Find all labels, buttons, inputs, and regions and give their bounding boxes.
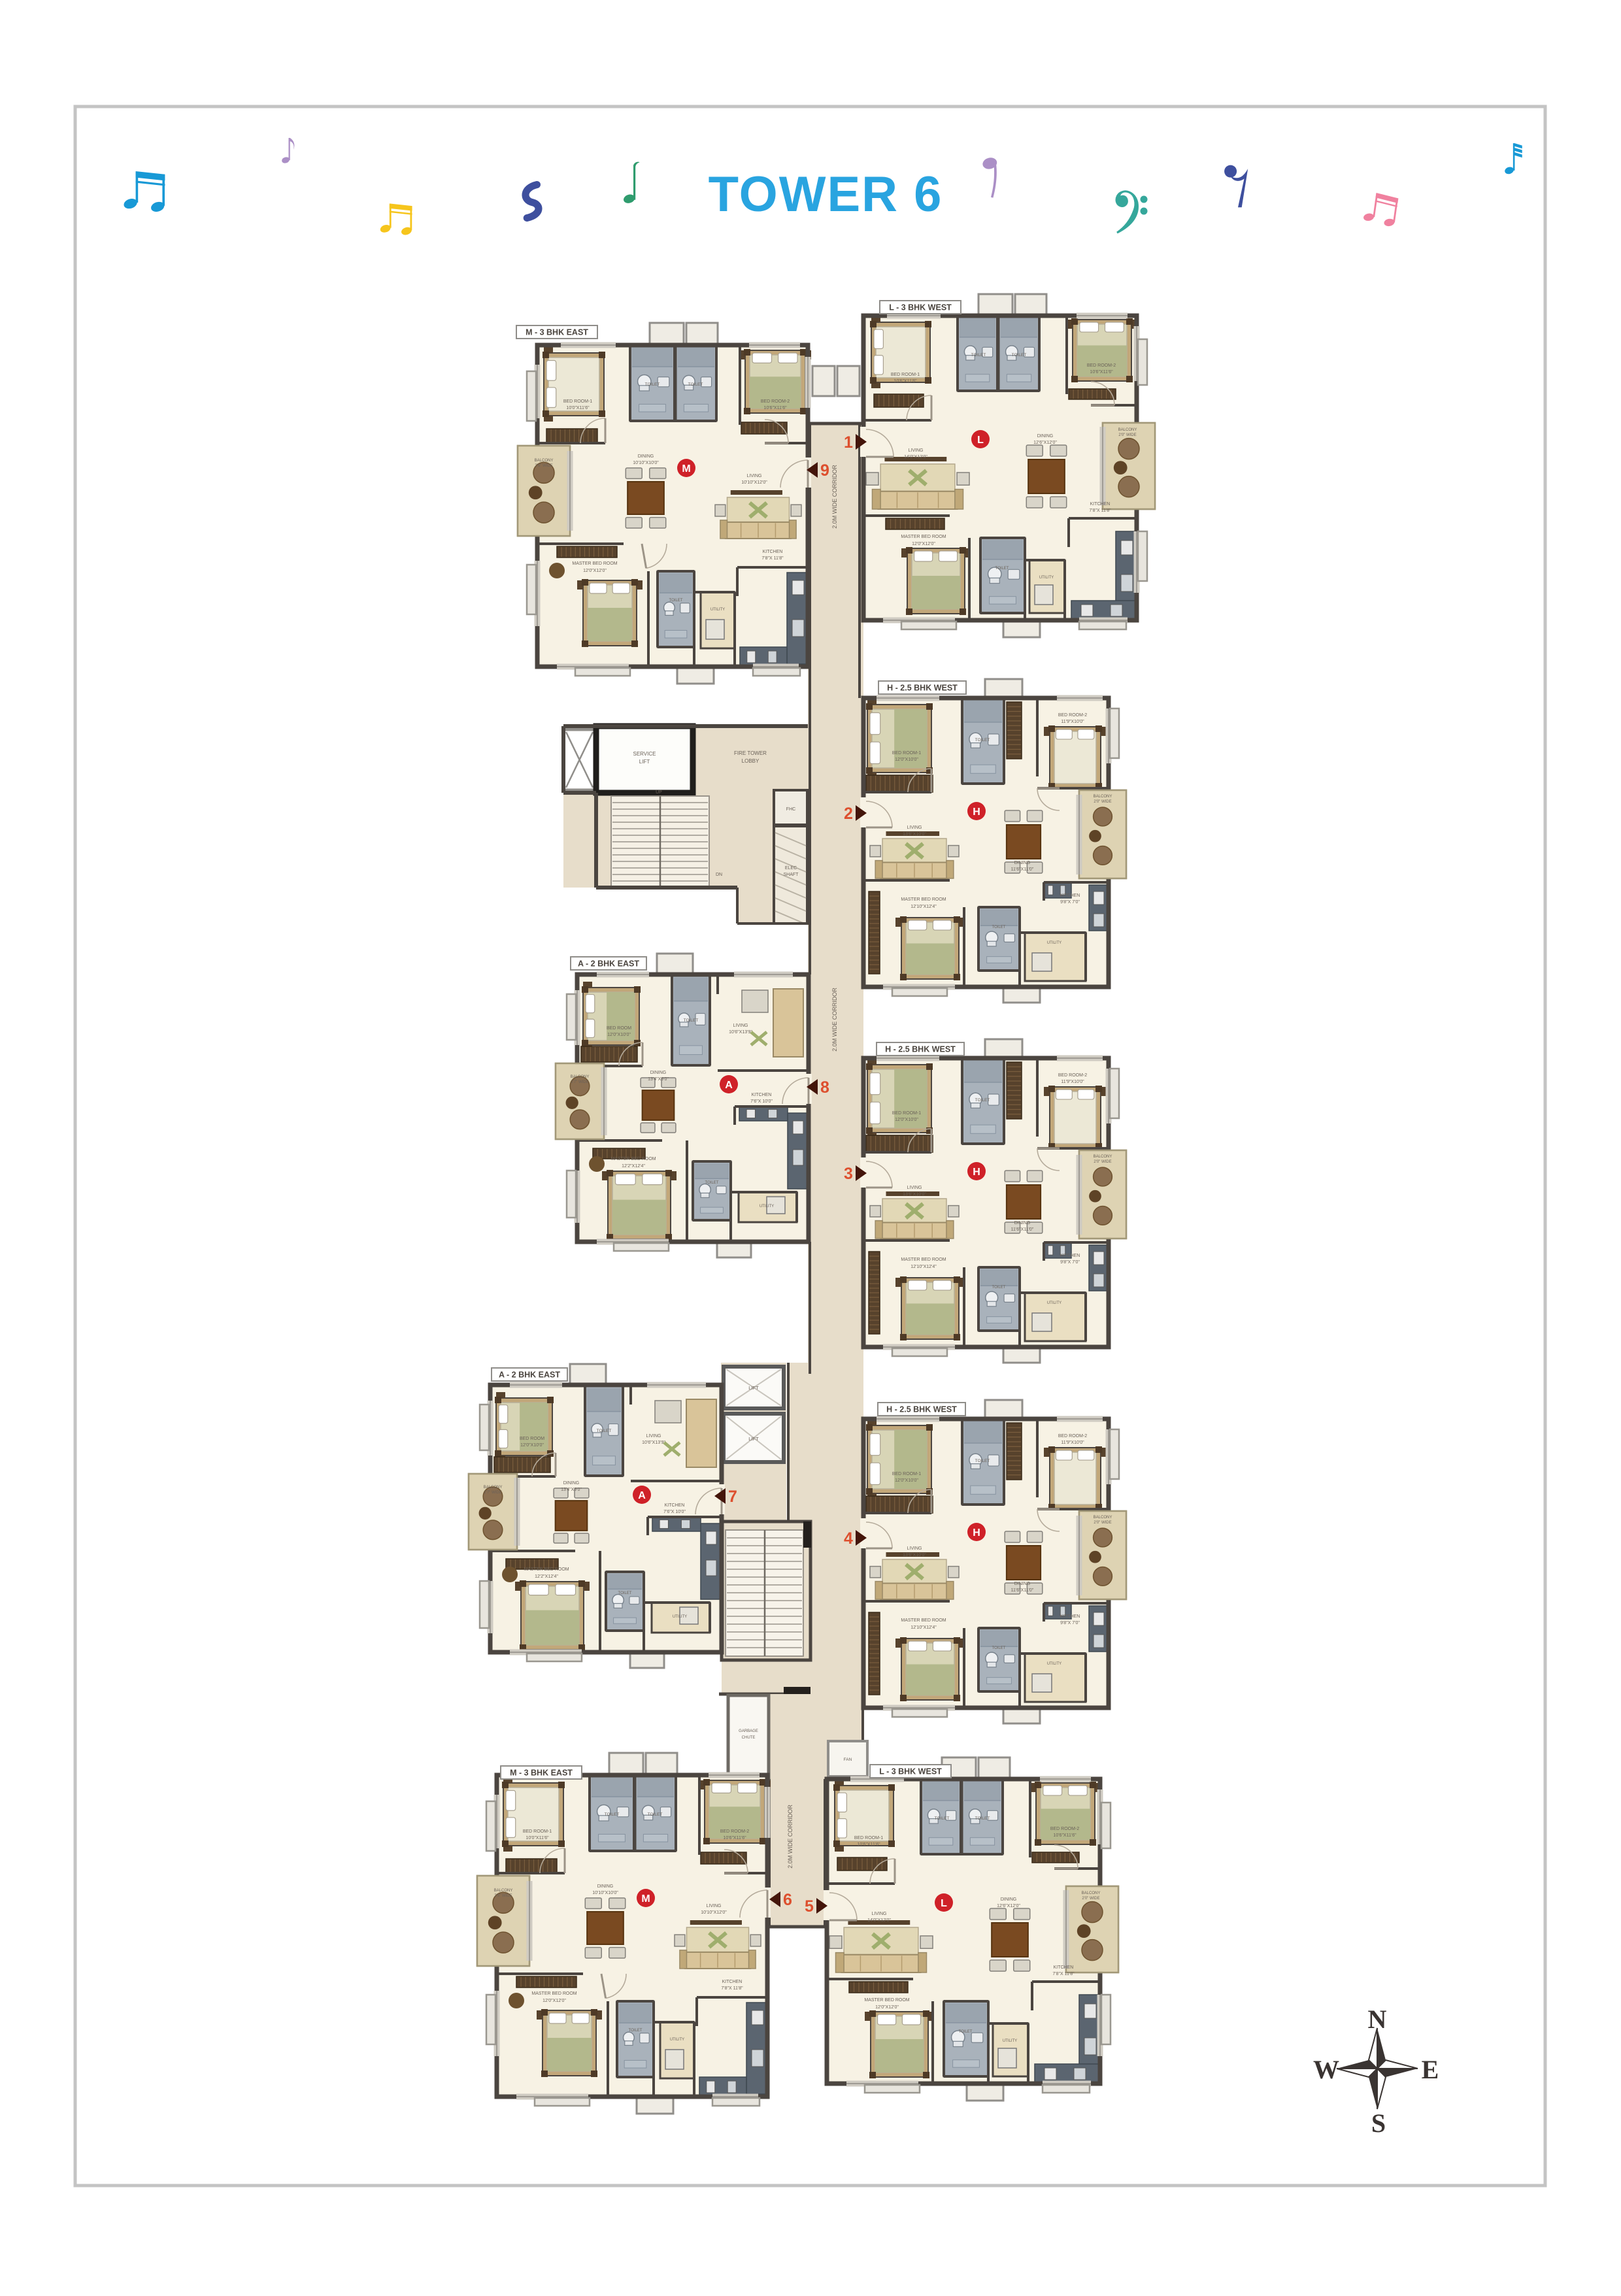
svg-text:DN: DN bbox=[716, 873, 722, 877]
svg-text:3: 3 bbox=[844, 1165, 853, 1183]
svg-text:M - 3 BHK EAST: M - 3 BHK EAST bbox=[510, 1769, 573, 1778]
svg-text:5: 5 bbox=[805, 1897, 814, 1916]
svg-text:L - 3 BHK WEST: L - 3 BHK WEST bbox=[879, 1767, 942, 1776]
svg-text:E: E bbox=[1422, 2055, 1439, 2084]
svg-text:ELEC: ELEC bbox=[785, 866, 797, 871]
svg-text:8: 8 bbox=[820, 1078, 829, 1097]
svg-text:4: 4 bbox=[844, 1529, 853, 1548]
svg-text:S: S bbox=[1371, 2108, 1386, 2138]
svg-text:H - 2.5 BHK WEST: H - 2.5 BHK WEST bbox=[887, 684, 958, 693]
svg-text:6: 6 bbox=[783, 1891, 792, 1909]
svg-text:W: W bbox=[1313, 2055, 1339, 2084]
svg-text:A - 2 BHK EAST: A - 2 BHK EAST bbox=[499, 1371, 560, 1380]
svg-text:L - 3 BHK WEST: L - 3 BHK WEST bbox=[889, 303, 952, 312]
svg-text:2.0M WIDE CORRIDOR: 2.0M WIDE CORRIDOR bbox=[831, 465, 838, 529]
svg-text:SERVICE: SERVICE bbox=[633, 751, 656, 757]
svg-text:TOWER 6: TOWER 6 bbox=[709, 167, 943, 222]
svg-text:1: 1 bbox=[844, 433, 853, 452]
svg-text:FIRE TOWER: FIRE TOWER bbox=[734, 750, 767, 756]
svg-text:SHAFT: SHAFT bbox=[784, 873, 799, 877]
svg-text:2.0M WIDE CORRIDOR: 2.0M WIDE CORRIDOR bbox=[787, 1805, 794, 1869]
svg-text:LIFT: LIFT bbox=[639, 759, 650, 765]
svg-text:7: 7 bbox=[728, 1488, 737, 1506]
svg-text:9: 9 bbox=[820, 461, 829, 480]
svg-text:FAN: FAN bbox=[844, 1757, 852, 1762]
svg-text:GARBAGE: GARBAGE bbox=[739, 1729, 758, 1733]
svg-text:M - 3 BHK EAST: M - 3 BHK EAST bbox=[526, 328, 588, 337]
svg-text:LIFT: LIFT bbox=[748, 1385, 759, 1391]
svg-text:CHUTE: CHUTE bbox=[742, 1736, 756, 1740]
svg-text:FHC: FHC bbox=[786, 807, 795, 812]
svg-text:H - 2.5 BHK WEST: H - 2.5 BHK WEST bbox=[885, 1045, 956, 1054]
svg-text:LIFT: LIFT bbox=[748, 1436, 759, 1442]
svg-text:LOBBY: LOBBY bbox=[742, 758, 760, 764]
svg-text:2.0M WIDE CORRIDOR: 2.0M WIDE CORRIDOR bbox=[831, 988, 838, 1052]
svg-text:N: N bbox=[1368, 2005, 1387, 2034]
svg-text:UP: UP bbox=[656, 790, 662, 795]
svg-text:H - 2.5 BHK WEST: H - 2.5 BHK WEST bbox=[886, 1405, 957, 1414]
svg-text:2: 2 bbox=[844, 805, 853, 823]
svg-text:A - 2 BHK EAST: A - 2 BHK EAST bbox=[578, 959, 639, 969]
